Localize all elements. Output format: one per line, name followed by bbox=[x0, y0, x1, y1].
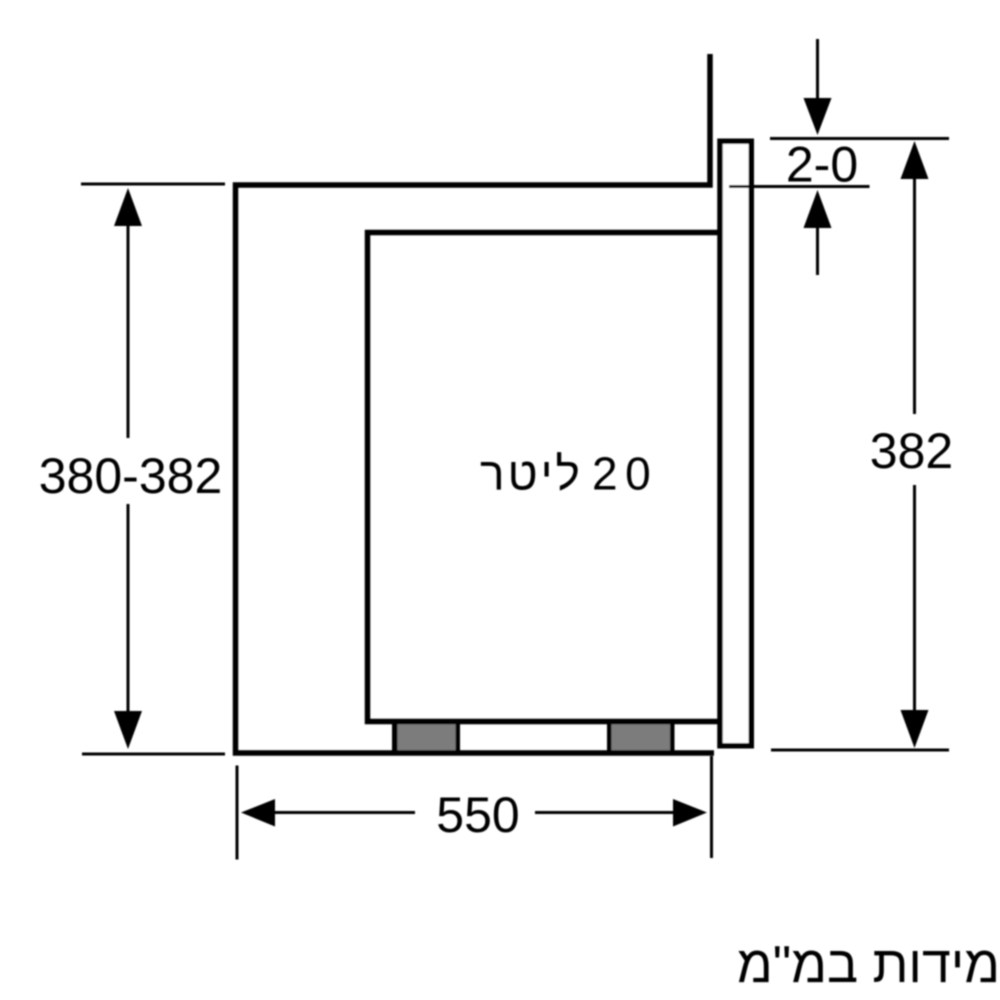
svg-text:20: 20 bbox=[592, 448, 658, 500]
svg-text:ליטר: ליטר bbox=[480, 448, 583, 500]
svg-text:382: 382 bbox=[870, 423, 953, 479]
svg-text:2-0: 2-0 bbox=[786, 137, 858, 193]
svg-text:380-382: 380-382 bbox=[39, 448, 223, 504]
svg-text:מידות במ"מ: מידות במ"מ bbox=[737, 936, 1000, 994]
svg-text:550: 550 bbox=[436, 787, 519, 843]
